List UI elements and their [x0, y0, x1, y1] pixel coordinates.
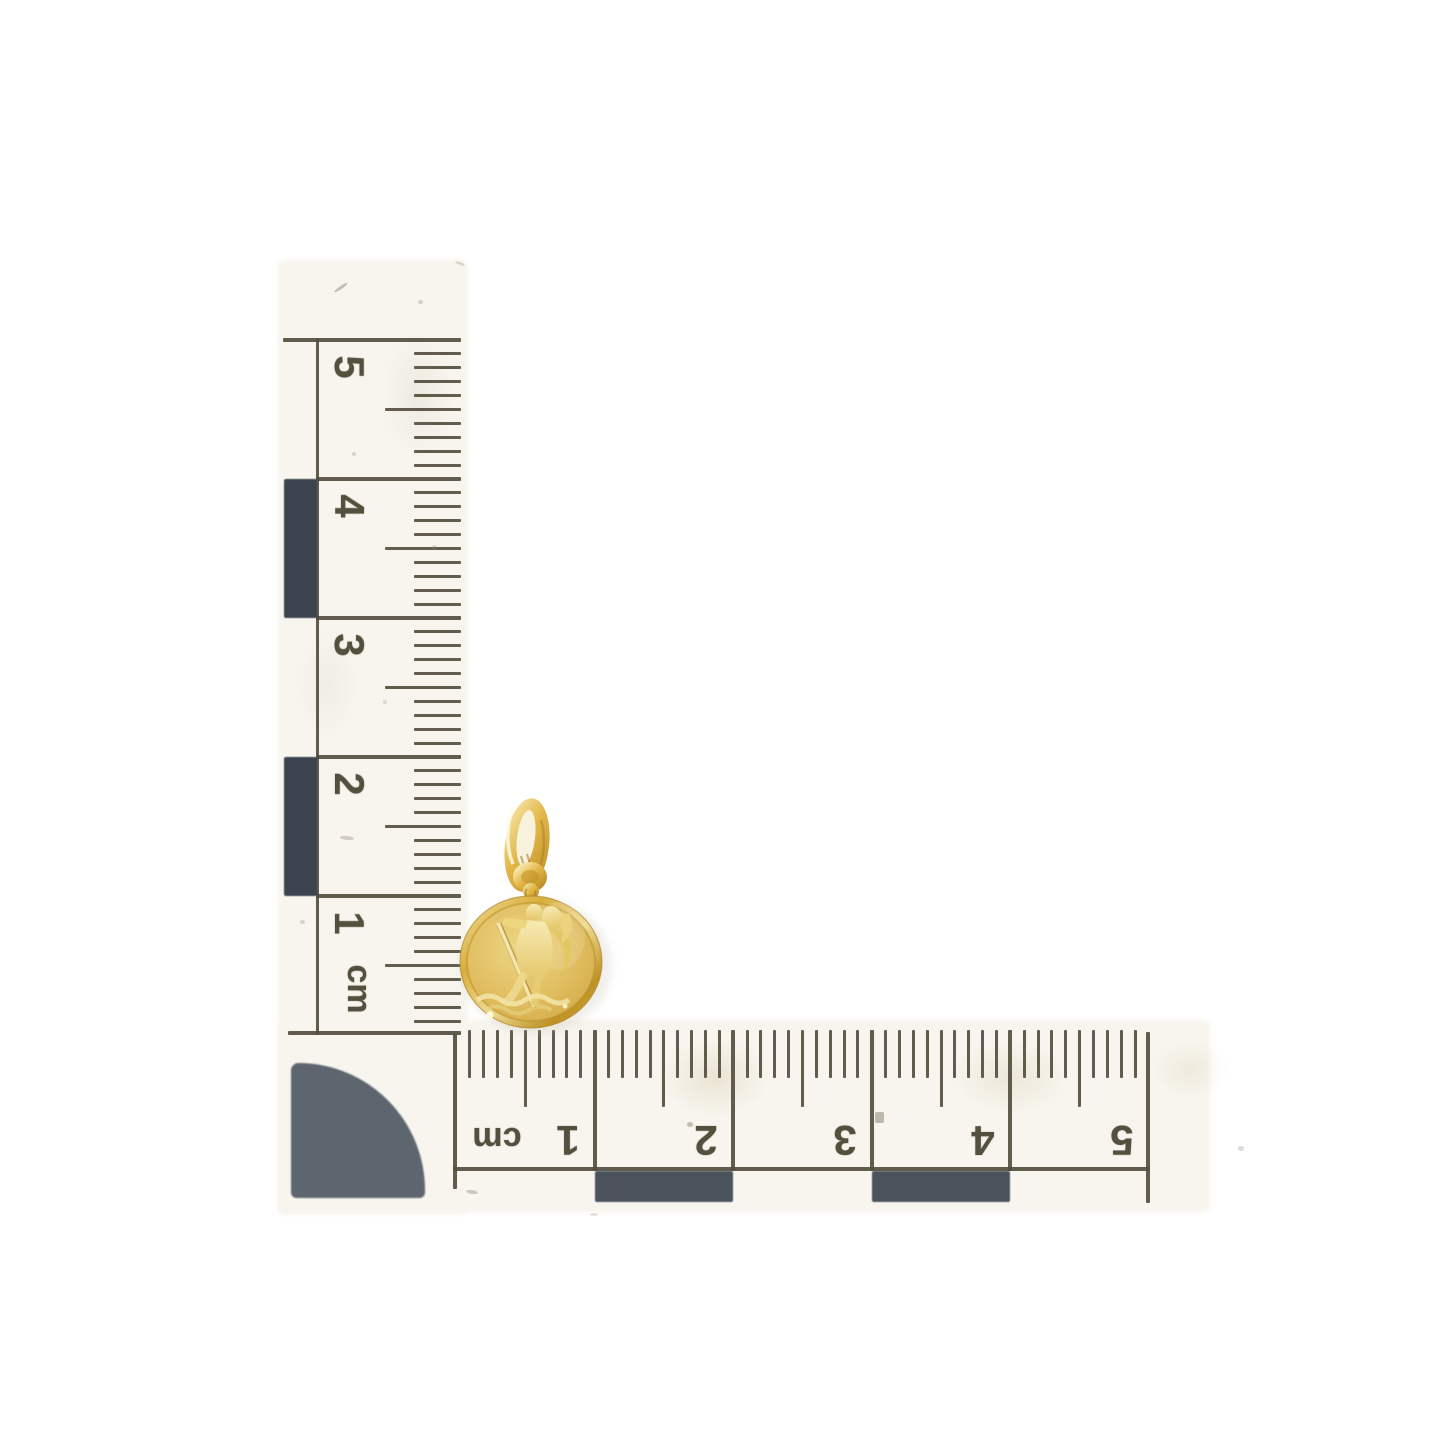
half-cm-tick: [385, 547, 461, 550]
mm-tick: [414, 352, 461, 355]
mm-tick: [414, 380, 461, 383]
paper-speck: [352, 452, 356, 456]
paper-stain: [1150, 1040, 1230, 1100]
paper-speck: [687, 1122, 693, 1127]
mm-tick: [1134, 1030, 1137, 1078]
scale-end-line: [453, 1034, 457, 1189]
mm-tick: [414, 422, 461, 425]
paper-speck: [590, 1213, 598, 1216]
mm-tick: [414, 533, 461, 536]
mm-tick: [746, 1030, 749, 1078]
scale-divider-line: [316, 338, 319, 1035]
paper-speck: [432, 545, 437, 550]
cm-line: [316, 616, 461, 620]
cm-number: 4: [972, 1119, 995, 1161]
checker-block: [595, 1171, 734, 1202]
scale-baseline: [453, 1167, 1150, 1171]
cm-line: [1008, 1030, 1012, 1171]
half-cm-tick: [662, 1030, 665, 1107]
mm-tick: [414, 505, 461, 508]
mm-tick: [898, 1030, 901, 1078]
cm-number: 5: [328, 355, 370, 378]
mm-tick: [414, 575, 461, 578]
half-cm-tick: [1078, 1030, 1081, 1107]
mm-tick: [414, 436, 461, 439]
paper-speck: [418, 300, 423, 304]
cm-number: 2: [328, 772, 370, 795]
mm-tick: [1092, 1030, 1095, 1078]
paper-speck: [1238, 1146, 1244, 1151]
mm-tick: [414, 561, 461, 564]
mm-tick: [815, 1030, 818, 1078]
mm-tick: [981, 1030, 984, 1078]
mm-tick: [856, 1030, 859, 1078]
mm-tick: [649, 1030, 652, 1078]
mm-tick: [843, 1030, 846, 1078]
unit-label: cm: [472, 1122, 521, 1156]
scale-end-line: [1146, 1032, 1150, 1203]
pendant-medal: [460, 896, 602, 1028]
cm-number: 5: [1110, 1119, 1133, 1161]
mm-tick: [1023, 1030, 1026, 1078]
mm-tick: [414, 700, 461, 703]
checker-block: [872, 1171, 1011, 1202]
cm-number: 1: [556, 1119, 579, 1161]
mm-tick: [414, 603, 461, 606]
mm-tick: [414, 519, 461, 522]
mm-tick: [884, 1030, 887, 1078]
cm-line: [870, 1030, 874, 1171]
scale-end-line: [283, 338, 461, 342]
cm-number: 4: [328, 494, 370, 517]
mm-tick: [718, 1030, 721, 1078]
half-cm-tick: [385, 408, 461, 411]
cm-line: [593, 1030, 597, 1171]
mm-tick: [414, 658, 461, 661]
mm-tick: [967, 1030, 970, 1078]
cm-number: 1: [328, 911, 370, 934]
mm-tick: [414, 728, 461, 731]
cm-number: 3: [833, 1119, 856, 1161]
mm-tick: [926, 1030, 929, 1078]
mm-tick: [953, 1030, 956, 1078]
mm-tick: [1064, 1030, 1067, 1078]
mm-tick: [414, 644, 461, 647]
mm-tick: [414, 714, 461, 717]
half-cm-tick: [801, 1030, 804, 1107]
mm-tick: [1037, 1030, 1040, 1078]
mm-tick: [414, 491, 461, 494]
paper-speck: [300, 920, 305, 924]
st-christopher-medal-pendant: [433, 768, 643, 1043]
unit-label: cm: [342, 964, 376, 1013]
cm-number: 3: [328, 633, 370, 656]
mm-tick: [829, 1030, 832, 1078]
mm-tick: [995, 1030, 998, 1078]
mm-tick: [414, 394, 461, 397]
pendant-bail: [499, 796, 554, 899]
cm-line: [316, 755, 461, 759]
mm-tick: [676, 1030, 679, 1078]
mm-tick: [414, 450, 461, 453]
paper-speck: [383, 700, 387, 704]
mm-tick: [773, 1030, 776, 1078]
mm-tick: [704, 1030, 707, 1078]
mm-tick: [414, 672, 461, 675]
checker-block: [284, 479, 317, 618]
mm-tick: [414, 366, 461, 369]
checker-block: [284, 757, 317, 896]
half-cm-tick: [940, 1030, 943, 1107]
mm-tick: [1106, 1030, 1109, 1078]
cm-number: 2: [695, 1119, 718, 1161]
mm-tick: [414, 589, 461, 592]
mm-tick: [759, 1030, 762, 1078]
cm-line: [316, 477, 461, 481]
mm-tick: [690, 1030, 693, 1078]
cm-line: [731, 1030, 735, 1171]
half-cm-tick: [385, 686, 461, 689]
mm-tick: [787, 1030, 790, 1078]
mm-tick: [414, 630, 461, 633]
mm-tick: [414, 742, 461, 745]
photo-scene: 54321cm 12345cm: [0, 0, 1445, 1445]
mm-tick: [1120, 1030, 1123, 1078]
mm-tick: [414, 464, 461, 467]
paper-speck: [875, 1112, 884, 1123]
mm-tick: [912, 1030, 915, 1078]
